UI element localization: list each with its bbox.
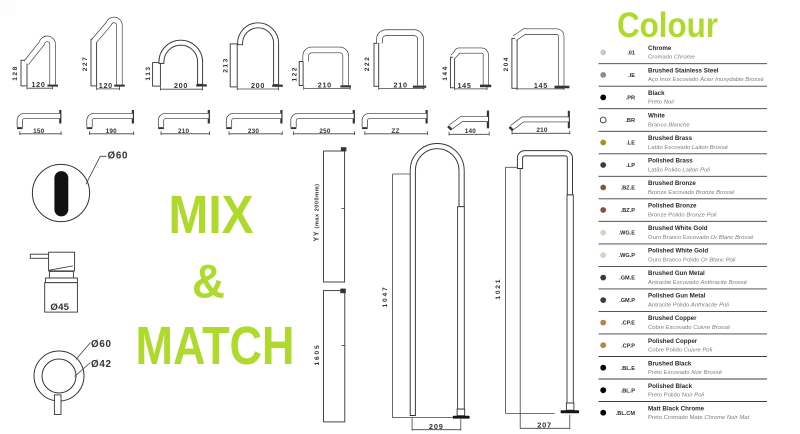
svg-text:210: 210 <box>178 128 190 135</box>
svg-text:210: 210 <box>536 127 548 134</box>
svg-text:Ø42: Ø42 <box>91 359 112 370</box>
svg-text:Antracite Polido Anthracite Po: Antracite Polido Anthracite Poli <box>648 302 730 308</box>
svg-text:1047: 1047 <box>382 286 389 308</box>
svg-text:210: 210 <box>318 81 332 90</box>
svg-text:Preto Noir: Preto Noir <box>648 100 676 106</box>
svg-text:Branco Blanche: Branco Blanche <box>648 122 690 128</box>
svg-text:MATCH: MATCH <box>136 316 295 376</box>
svg-text:YY (max 2000mm): YY (max 2000mm) <box>313 184 320 242</box>
svg-text:&: & <box>192 255 225 308</box>
svg-text:190: 190 <box>106 128 118 135</box>
svg-text:150: 150 <box>33 128 45 135</box>
svg-text:.01: .01 <box>627 51 635 57</box>
svg-text:.LE: .LE <box>626 141 635 147</box>
svg-text:Black: Black <box>648 90 665 97</box>
svg-text:Polished Copper: Polished Copper <box>648 338 698 345</box>
svg-text:Matt Black Chrome: Matt Black Chrome <box>648 405 705 412</box>
svg-text:.WG.E: .WG.E <box>619 231 636 237</box>
svg-text:Brushed Gun Metal: Brushed Gun Metal <box>648 270 705 277</box>
svg-text:204: 204 <box>503 56 510 72</box>
svg-text:227: 227 <box>82 56 89 72</box>
svg-text:Brushed Black: Brushed Black <box>648 360 692 367</box>
svg-text:.BL.CM: .BL.CM <box>616 411 636 417</box>
svg-text:ZZ: ZZ <box>391 128 399 135</box>
svg-text:.BL.P: .BL.P <box>621 388 636 394</box>
svg-text:120: 120 <box>31 80 45 89</box>
svg-text:.IE: .IE <box>628 73 635 79</box>
svg-text:210: 210 <box>394 81 408 90</box>
svg-text:Preto Escovado Noir Brossé: Preto Escovado Noir Brossé <box>648 370 723 376</box>
svg-text:Ouro Branco Polido Or Blanc Po: Ouro Branco Polido Or Blanc Poli <box>648 257 736 263</box>
svg-text:.CP.P: .CP.P <box>621 343 635 349</box>
svg-text:209: 209 <box>429 422 444 431</box>
svg-text:.BZ.P: .BZ.P <box>621 208 636 214</box>
svg-text:Latão Polido Laiton Poli: Latão Polido Laiton Poli <box>648 167 711 173</box>
svg-text:White: White <box>648 113 665 120</box>
svg-text:Cobre Escovado Cuivre Brossé: Cobre Escovado Cuivre Brossé <box>648 325 731 331</box>
svg-text:250: 250 <box>319 128 331 135</box>
svg-text:1021: 1021 <box>495 278 502 300</box>
svg-text:MIX: MIX <box>169 185 254 245</box>
svg-text:140: 140 <box>465 128 477 135</box>
svg-text:Ø60: Ø60 <box>91 339 112 350</box>
svg-text:Ø45: Ø45 <box>50 302 69 313</box>
svg-text:Antracite Escovado Anthracite: Antracite Escovado Anthracite Brossé <box>648 280 748 286</box>
svg-text:.WG.P: .WG.P <box>619 253 636 259</box>
svg-text:Aço Inox Escovado Acier Inoxyd: Aço Inox Escovado Acier Inoxydable Bross… <box>648 77 764 83</box>
svg-text:200: 200 <box>251 81 265 90</box>
svg-text:113: 113 <box>145 65 152 80</box>
svg-text:.CP.E: .CP.E <box>621 321 635 327</box>
svg-text:Polished Brass: Polished Brass <box>648 158 693 165</box>
svg-text:Polished White Gold: Polished White Gold <box>648 248 708 255</box>
svg-text:207: 207 <box>537 421 552 430</box>
svg-text:.BZ.E: .BZ.E <box>621 186 636 192</box>
svg-text:128: 128 <box>12 65 19 81</box>
svg-text:.LP: .LP <box>626 163 635 169</box>
svg-text:Preto Cromado Mate Chrome Noir: Preto Cromado Mate Chrome Noir Mat <box>648 415 750 421</box>
svg-text:Polished Gun Metal: Polished Gun Metal <box>648 293 706 300</box>
svg-text:Chrome: Chrome <box>648 45 672 52</box>
svg-text:Ø60: Ø60 <box>108 151 129 162</box>
svg-text:Polished Bronze: Polished Bronze <box>648 203 697 210</box>
svg-text:Brushed Brass: Brushed Brass <box>648 135 693 142</box>
svg-text:.GM.E: .GM.E <box>619 276 635 282</box>
svg-text:Bronze Escovado Bronze Brossé: Bronze Escovado Bronze Brossé <box>648 190 735 196</box>
svg-text:230: 230 <box>248 128 260 135</box>
svg-text:144: 144 <box>442 65 449 81</box>
svg-text:Colour: Colour <box>617 6 718 45</box>
svg-text:122: 122 <box>291 66 298 82</box>
svg-text:Latão Escovado Laiton Brossé: Latão Escovado Laiton Brossé <box>648 145 729 151</box>
svg-text:200: 200 <box>174 81 188 90</box>
svg-text:Cromado Chrome: Cromado Chrome <box>648 55 696 61</box>
svg-text:213: 213 <box>222 57 229 73</box>
svg-text:.BR: .BR <box>625 118 635 124</box>
svg-text:120: 120 <box>99 81 113 90</box>
svg-text:Brushed White Gold: Brushed White Gold <box>648 225 708 232</box>
svg-text:Brushed Bronze: Brushed Bronze <box>648 180 696 187</box>
svg-text:.PR: .PR <box>626 96 635 102</box>
svg-text:145: 145 <box>534 81 548 90</box>
svg-text:222: 222 <box>364 56 371 72</box>
svg-text:.GM.P: .GM.P <box>619 298 635 304</box>
svg-text:1605: 1605 <box>314 344 321 366</box>
svg-text:Cobre Polido Cuivre Poli: Cobre Polido Cuivre Poli <box>648 348 713 354</box>
svg-text:Polished Black: Polished Black <box>648 383 693 390</box>
svg-text:.BL.E: .BL.E <box>621 366 636 372</box>
svg-text:Preto Polido Noir Poli: Preto Polido Noir Poli <box>648 393 705 399</box>
svg-text:Brushed Stainless Steel: Brushed Stainless Steel <box>648 68 719 75</box>
svg-text:Brushed Copper: Brushed Copper <box>648 315 697 322</box>
svg-text:Ouro Branco Escovado Or Blanc: Ouro Branco Escovado Or Blanc Brossé <box>648 235 754 241</box>
svg-text:Bronze Polido Bronze Poli: Bronze Polido Bronze Poli <box>648 212 717 218</box>
svg-text:145: 145 <box>457 81 471 90</box>
